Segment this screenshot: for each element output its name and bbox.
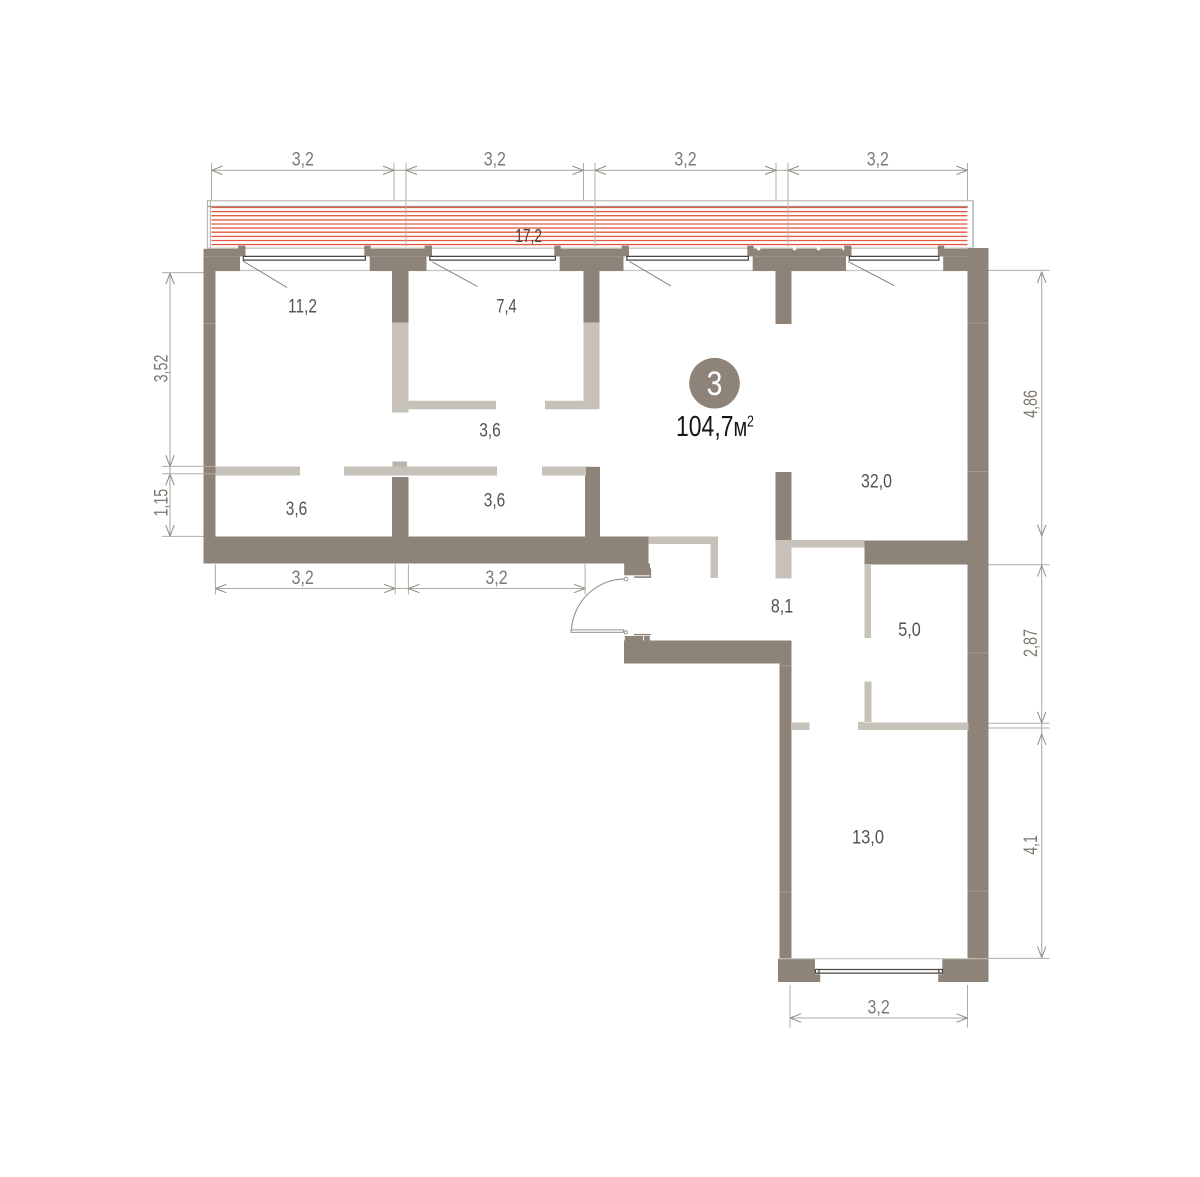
- svg-text:5,0: 5,0: [898, 620, 921, 641]
- svg-text:3,2: 3,2: [674, 149, 696, 171]
- svg-text:3,6: 3,6: [286, 499, 308, 520]
- svg-text:3,2: 3,2: [485, 567, 507, 589]
- svg-text:7,4: 7,4: [496, 297, 517, 318]
- svg-text:17,2: 17,2: [515, 226, 542, 246]
- svg-text:2: 2: [747, 414, 754, 431]
- svg-text:3,52: 3,52: [150, 355, 172, 383]
- svg-text:8,1: 8,1: [771, 597, 793, 618]
- svg-text:3: 3: [707, 365, 723, 403]
- svg-text:м: м: [734, 412, 748, 442]
- svg-text:13,0: 13,0: [852, 828, 884, 849]
- svg-text:3,2: 3,2: [292, 567, 314, 589]
- svg-text:3,2: 3,2: [867, 149, 889, 171]
- svg-text:4,1: 4,1: [1020, 835, 1042, 855]
- svg-text:32,0: 32,0: [861, 472, 892, 493]
- svg-text:3,6: 3,6: [484, 491, 506, 512]
- svg-text:3,2: 3,2: [484, 149, 506, 171]
- svg-text:4,86: 4,86: [1020, 390, 1042, 418]
- svg-text:3,2: 3,2: [868, 997, 890, 1019]
- svg-text:1,15: 1,15: [150, 489, 172, 517]
- svg-text:11,2: 11,2: [288, 297, 317, 318]
- svg-text:3,6: 3,6: [479, 421, 501, 442]
- svg-text:104,7: 104,7: [676, 411, 734, 443]
- svg-text:2,87: 2,87: [1020, 629, 1042, 657]
- svg-text:3,2: 3,2: [292, 149, 314, 171]
